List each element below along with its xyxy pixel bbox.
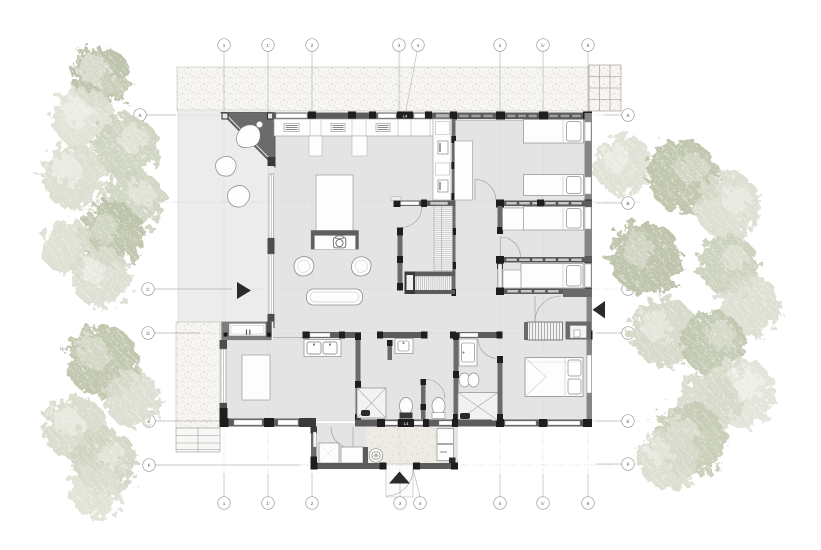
svg-text:4: 4 (419, 501, 422, 506)
svg-text:1: 1 (223, 501, 226, 506)
svg-text:1: 1 (223, 43, 226, 48)
svg-text:6: 6 (587, 43, 590, 48)
svg-text:L4: L4 (404, 421, 409, 426)
svg-text:3: 3 (399, 501, 402, 506)
svg-text:3: 3 (398, 43, 401, 48)
svg-text:E: E (626, 419, 629, 424)
svg-text:B: B (626, 201, 629, 206)
svg-text:5: 5 (499, 501, 502, 506)
svg-text:F: F (148, 463, 151, 468)
svg-text:L4: L4 (403, 114, 408, 119)
svg-text:5: 5 (499, 43, 502, 48)
svg-text:1': 1' (266, 501, 270, 506)
svg-text:5': 5' (541, 501, 545, 506)
svg-text:F: F (627, 462, 630, 467)
svg-text:2: 2 (311, 501, 314, 506)
svg-text:6: 6 (587, 501, 590, 506)
svg-text:5': 5' (541, 43, 545, 48)
svg-text:1': 1' (266, 43, 270, 48)
svg-text:2: 2 (311, 43, 314, 48)
svg-text:4: 4 (417, 43, 420, 48)
